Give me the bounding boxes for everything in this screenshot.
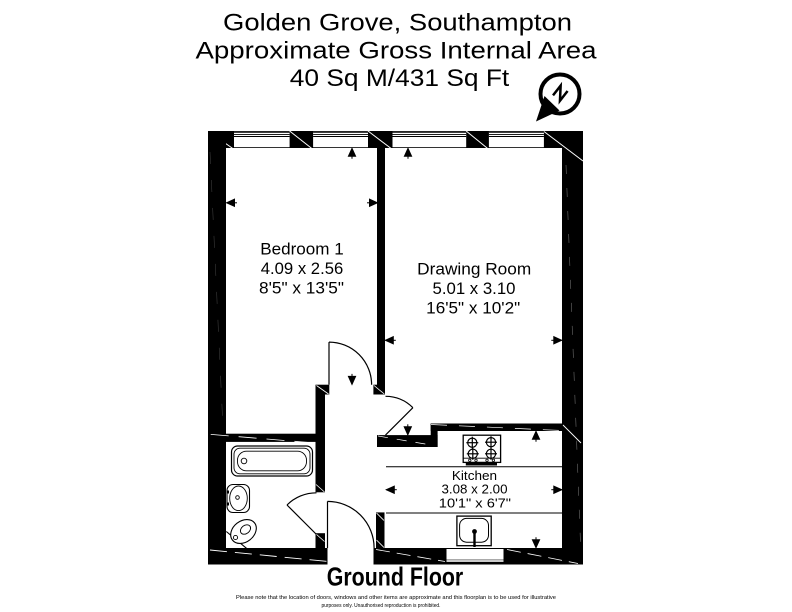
svg-text:Please note that the location: Please note that the location of doors, … bbox=[236, 595, 556, 601]
svg-text:3.08 x 2.00: 3.08 x 2.00 bbox=[442, 482, 508, 497]
svg-text:Kitchen: Kitchen bbox=[452, 468, 497, 483]
svg-text:purposes only. Unauthorised re: purposes only. Unauthorised reproduction… bbox=[322, 603, 441, 609]
svg-text:10'1" x 6'7": 10'1" x 6'7" bbox=[439, 495, 512, 510]
svg-text:16'5" x 10'2": 16'5" x 10'2" bbox=[426, 300, 520, 318]
svg-text:40 Sq M/431 Sq Ft: 40 Sq M/431 Sq Ft bbox=[290, 65, 510, 92]
svg-text:Bedroom 1: Bedroom 1 bbox=[260, 241, 344, 259]
svg-text:Approximate Gross Internal Are: Approximate Gross Internal Area bbox=[196, 37, 598, 64]
svg-text:8'5" x 13'5": 8'5" x 13'5" bbox=[259, 280, 344, 298]
svg-text:Ground Floor: Ground Floor bbox=[327, 562, 464, 592]
svg-text:5.01 x 3.10: 5.01 x 3.10 bbox=[433, 280, 516, 298]
svg-text:Drawing Room: Drawing Room bbox=[417, 261, 531, 279]
svg-text:Golden Grove, Southampton: Golden Grove, Southampton bbox=[223, 10, 572, 37]
svg-text:4.09 x 2.56: 4.09 x 2.56 bbox=[261, 260, 344, 278]
